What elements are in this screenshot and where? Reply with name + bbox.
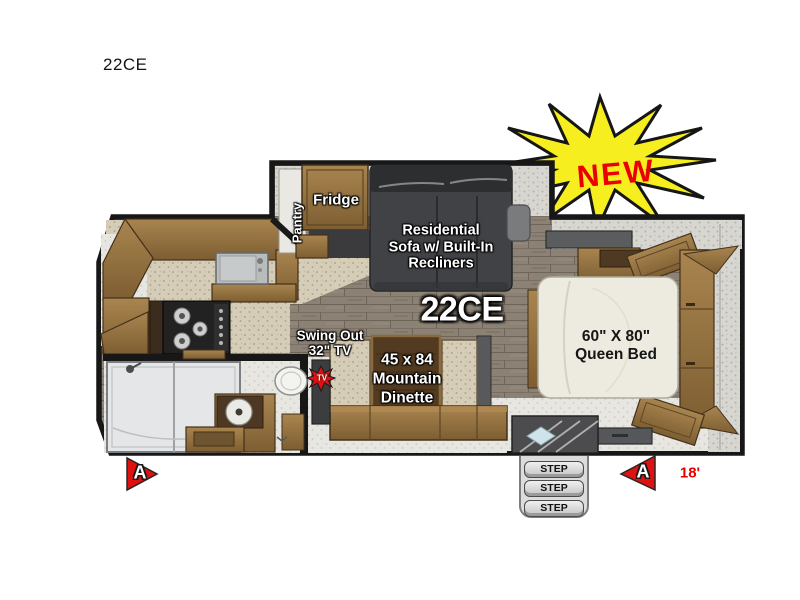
pantry-label: Pantry bbox=[290, 203, 305, 243]
marker-a-left-label: A bbox=[134, 463, 147, 484]
toilet bbox=[275, 367, 307, 395]
kitchen-sink bbox=[216, 253, 268, 284]
tv-burst-label: TV bbox=[317, 374, 327, 383]
new-badge-text: NEW bbox=[575, 153, 656, 196]
length-label: 18' bbox=[680, 465, 700, 482]
sofa-label: Residential Sofa w/ Built-In Recliners bbox=[389, 222, 494, 272]
fridge-label: Fridge bbox=[313, 192, 359, 209]
floorplan-drawing bbox=[0, 0, 800, 600]
media-console bbox=[546, 231, 632, 248]
entry-mat bbox=[512, 416, 598, 453]
step-2: STEP bbox=[524, 480, 584, 497]
step-1: STEP bbox=[524, 461, 584, 478]
model-label: 22CE bbox=[420, 291, 503, 330]
stove bbox=[150, 301, 230, 354]
step-3: STEP bbox=[524, 500, 584, 517]
dinette-label: 45 x 84 Mountain Dinette bbox=[373, 351, 442, 408]
entry-steps: STEP STEP STEP bbox=[519, 456, 589, 518]
bed-label: 60" X 80" Queen Bed bbox=[575, 328, 657, 364]
tv-label: Swing Out 32" TV bbox=[297, 328, 364, 358]
marker-a-right-label: A bbox=[637, 462, 650, 483]
floorplan-page: 22CE NEW Pantry Fridge Residential Sofa … bbox=[0, 0, 800, 600]
page-title: 22CE bbox=[103, 55, 148, 75]
